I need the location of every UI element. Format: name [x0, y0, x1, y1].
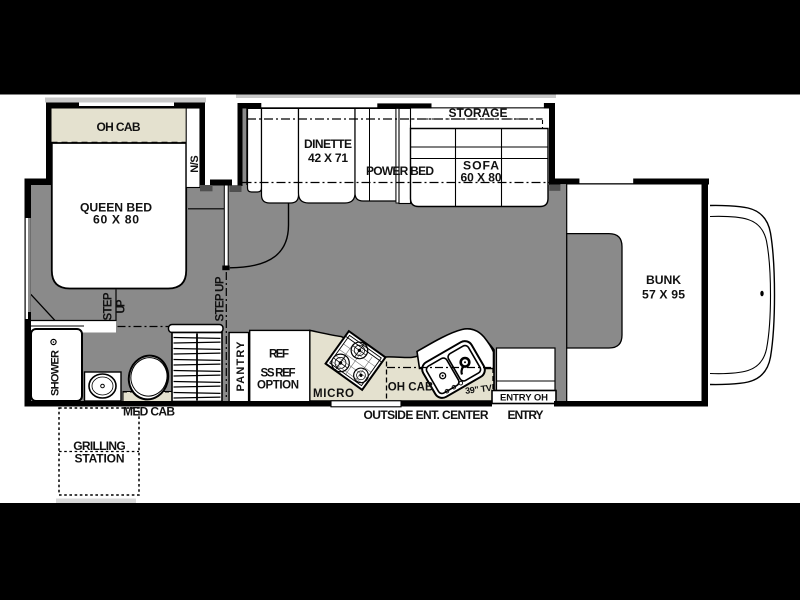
svg-text:60 X 80: 60 X 80 — [461, 171, 502, 185]
svg-text:MED CAB: MED CAB — [123, 404, 175, 418]
svg-text:SS REF: SS REF — [261, 367, 296, 379]
svg-text:REF: REF — [269, 349, 289, 361]
svg-text:OUTSIDE ENT. CENTER: OUTSIDE ENT. CENTER — [364, 408, 489, 422]
svg-text:60 X 80: 60 X 80 — [93, 212, 139, 226]
svg-text:STORAGE: STORAGE — [449, 106, 508, 120]
svg-text:BUNK: BUNK — [646, 273, 681, 287]
svg-text:PANTRY: PANTRY — [235, 341, 247, 392]
svg-text:POWER BED: POWER BED — [366, 164, 434, 178]
svg-text:OPTION: OPTION — [257, 380, 299, 392]
svg-text:57 X 95: 57 X 95 — [642, 288, 685, 302]
svg-text:ENTRY: ENTRY — [508, 408, 544, 422]
svg-text:42 X 71: 42 X 71 — [308, 151, 348, 165]
svg-text:MICRO: MICRO — [313, 388, 354, 400]
svg-text:ENTRY OH: ENTRY OH — [500, 392, 548, 403]
svg-text:DINETTE: DINETTE — [304, 137, 352, 151]
svg-text:STEP: STEP — [103, 292, 115, 320]
svg-text:N/S: N/S — [189, 155, 201, 173]
svg-text:STATION: STATION — [75, 451, 125, 465]
svg-text:OH CAB: OH CAB — [97, 120, 141, 134]
svg-text:STEP UP: STEP UP — [215, 276, 227, 321]
svg-text:UP: UP — [116, 299, 128, 313]
svg-text:SHOWER: SHOWER — [50, 350, 62, 396]
svg-text:OH CAB: OH CAB — [388, 382, 434, 394]
